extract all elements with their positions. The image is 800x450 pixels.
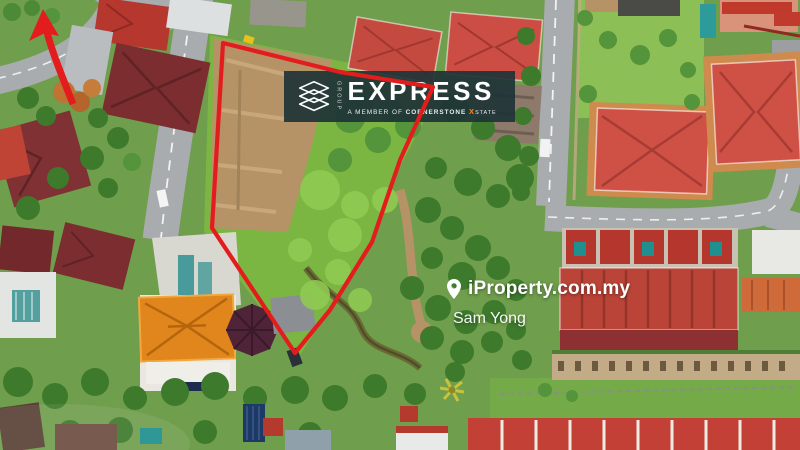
- express-group-label: GROUP: [335, 81, 341, 111]
- aerial-photo-scene: [0, 0, 800, 450]
- location-pin-icon: [447, 279, 461, 299]
- tagline-brand: CORNERSTONE: [406, 109, 469, 116]
- agent-name: Sam Yong: [453, 310, 526, 328]
- lawn-strip: [490, 378, 800, 424]
- tagline-suffix: STATE: [475, 110, 497, 116]
- express-logo-panel: GROUP EXPRESS A MEMBER OF CORNERSTONE XS…: [284, 71, 515, 122]
- aerial-photo: GROUP EXPRESS A MEMBER OF CORNERSTONE XS…: [0, 0, 800, 450]
- iproperty-site-text: iProperty.com.my: [468, 278, 630, 300]
- stacked-layers-icon: [297, 79, 331, 115]
- express-tagline: A MEMBER OF CORNERSTONE XSTATE: [348, 107, 497, 116]
- express-brand-name: EXPRESS: [348, 78, 497, 104]
- iproperty-watermark: iProperty.com.my: [447, 278, 630, 300]
- tagline-prefix: A MEMBER OF: [348, 109, 406, 116]
